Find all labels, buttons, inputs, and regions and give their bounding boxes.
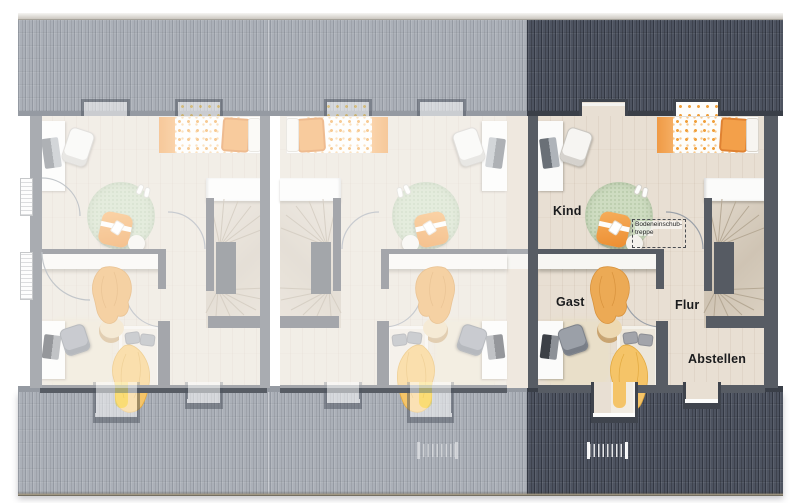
floorplan-scene: Kind Gast Flur Abstellen Bodeneinschub- … xyxy=(0,0,800,503)
interior-wall xyxy=(158,321,170,385)
interior-wall xyxy=(381,249,389,289)
round-rug xyxy=(392,182,460,250)
pouf xyxy=(402,235,419,252)
chair-guest-room xyxy=(455,323,488,358)
stairwell-wall xyxy=(280,316,339,328)
attic-ladder-label-line1: Bodeneinschub- xyxy=(635,221,682,229)
plan-detail-overlay xyxy=(280,96,507,426)
pillow-orange xyxy=(221,117,251,153)
bed-foot xyxy=(410,382,434,416)
bed-child-room xyxy=(158,116,261,154)
room-label-abstellen: Abstellen xyxy=(688,352,746,366)
window-sill xyxy=(327,399,360,406)
pillow-white xyxy=(286,118,299,152)
ribbon-bow xyxy=(415,221,446,232)
window-sill xyxy=(187,399,220,406)
dormer-window-bed xyxy=(324,99,372,116)
slipper xyxy=(135,183,145,196)
dormer-window-bed xyxy=(175,99,223,116)
bed-child-room xyxy=(286,116,389,154)
building-units: Kind Gast Flur Abstellen Bodeneinschub- … xyxy=(0,0,800,503)
window-sill xyxy=(84,103,127,106)
interior-wall xyxy=(656,249,664,289)
bed-foot xyxy=(611,382,635,416)
dormer-bed-nook xyxy=(93,382,140,423)
stairwell-wall xyxy=(704,198,712,291)
desk-guest-room xyxy=(482,321,507,379)
dormer-storage-window xyxy=(683,382,721,409)
room-label-kind: Kind xyxy=(553,204,582,218)
dormer-window xyxy=(579,99,628,116)
exterior-knee-wall xyxy=(538,385,765,393)
bed-head xyxy=(178,102,220,116)
pillow-grey xyxy=(139,333,155,347)
laptop xyxy=(485,137,506,169)
gable-window xyxy=(20,252,33,300)
window-sill xyxy=(593,413,635,420)
pillow-orange xyxy=(296,117,326,153)
stairwell-wall xyxy=(206,198,214,291)
exterior-knee-wall xyxy=(280,385,507,393)
rug xyxy=(437,322,499,384)
interior-wall xyxy=(381,249,507,254)
exterior-knee-wall xyxy=(40,385,267,393)
window-sill xyxy=(95,413,137,420)
stairwell-wall xyxy=(208,316,267,328)
gable-wall-right xyxy=(764,116,778,388)
pouf xyxy=(128,235,145,252)
dormer-storage-window xyxy=(324,382,362,409)
bed-head xyxy=(676,102,718,116)
slipper xyxy=(143,186,151,198)
house-unit-right[interactable]: Kind Gast Flur Abstellen Bodeneinschub- … xyxy=(538,116,765,388)
stairwell-wall xyxy=(706,316,765,328)
room-label-gast: Gast xyxy=(556,295,585,309)
dormer-storage-window xyxy=(185,382,223,409)
pillow-grey xyxy=(124,331,141,345)
interior-wall xyxy=(377,321,389,385)
bed-sheet xyxy=(370,117,388,153)
desk-child-room xyxy=(482,121,507,191)
laptop xyxy=(42,334,62,360)
winder-staircase xyxy=(206,198,267,328)
bed-sheet xyxy=(159,117,177,153)
window-sill xyxy=(420,103,463,106)
laptop xyxy=(486,334,506,360)
laundry-basket xyxy=(99,319,123,343)
bed-guest-room xyxy=(119,326,160,388)
chair-child-room xyxy=(451,126,487,168)
dormer-bed-nook xyxy=(407,382,454,423)
bed-duvet xyxy=(175,117,241,153)
chair-guest-room xyxy=(58,323,91,358)
bed-head xyxy=(327,102,369,116)
house-unit-middle[interactable]: Kind Gast Flur Abstellen Bodeneinschub- … xyxy=(280,116,507,388)
dormer-window xyxy=(81,99,130,116)
roof-ladder xyxy=(419,444,456,457)
gable-window xyxy=(20,178,33,216)
roof-ladder xyxy=(589,444,626,457)
slipper xyxy=(396,186,404,198)
party-wall xyxy=(528,116,538,388)
stairwell-wall xyxy=(333,198,341,291)
laundry-basket xyxy=(424,319,448,343)
party-wall xyxy=(260,116,270,388)
wardrobe xyxy=(280,178,341,201)
pillow-grey xyxy=(391,333,407,347)
wardrobe xyxy=(206,178,267,201)
attic-ladder-label-line2: treppe xyxy=(635,229,653,237)
floor xyxy=(280,116,507,388)
dormer-bed-nook xyxy=(591,382,638,423)
pillow-grey xyxy=(406,331,423,345)
interior-wall xyxy=(158,249,166,289)
room-label-flur: Flur xyxy=(675,298,699,312)
interior-wall xyxy=(656,321,668,385)
attic-ladder-outline: Bodeneinschub- treppe xyxy=(632,219,686,248)
dormer-window-bed xyxy=(673,99,721,116)
floor-cushion xyxy=(413,210,450,249)
winder-staircase xyxy=(280,198,341,328)
bed-foot xyxy=(113,382,137,416)
dormer-window xyxy=(417,99,466,116)
slipper xyxy=(402,183,412,196)
rug xyxy=(48,322,110,384)
window-sill xyxy=(582,103,625,106)
window-sill xyxy=(410,413,452,420)
interior-wall xyxy=(538,249,664,254)
window-sill xyxy=(685,399,718,406)
desk-guest-room xyxy=(40,321,65,379)
bed-guest-room xyxy=(387,326,428,388)
plan-detail-overlay xyxy=(538,96,765,426)
window-swing-arcs xyxy=(40,150,110,320)
built-in-wardrobe xyxy=(386,254,507,269)
bed-duvet xyxy=(306,117,372,153)
